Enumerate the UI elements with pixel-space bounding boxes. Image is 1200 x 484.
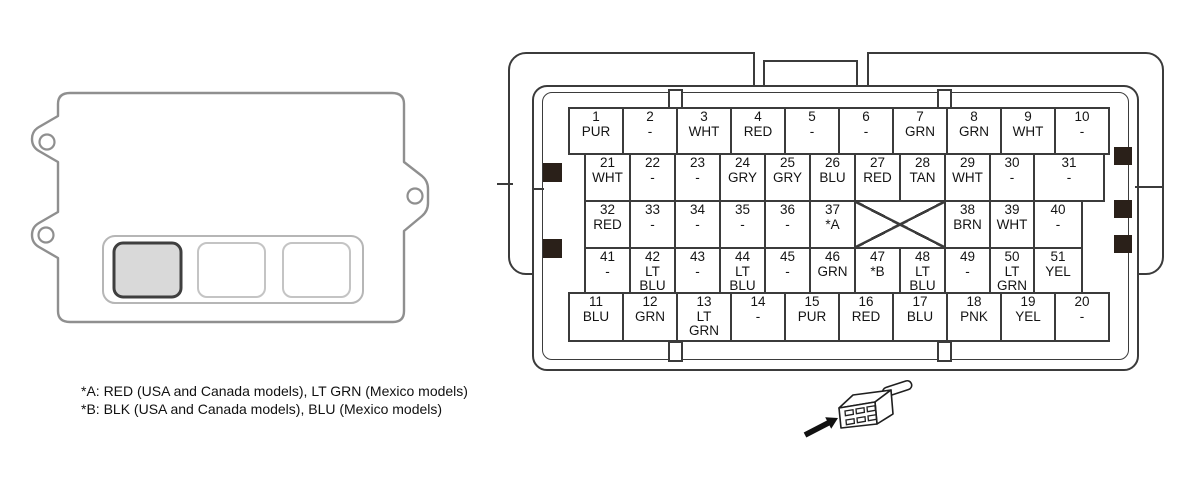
pin-cell-19: 19YEL — [1000, 292, 1056, 342]
pin-wire-color: WHT — [952, 171, 983, 186]
pin-number: 29 — [960, 156, 975, 171]
pin-wire-color: GRN — [959, 125, 989, 140]
pin-wire-color: PNK — [960, 310, 988, 325]
footnote-b: *B: BLK (USA and Canada models), BLU (Me… — [81, 401, 468, 419]
pin-number: 19 — [1020, 295, 1035, 310]
pin-cell-16: 16RED — [838, 292, 894, 342]
harness-connector-illustration — [793, 376, 928, 448]
pin-cell-49: 49- — [944, 247, 991, 294]
pin-wire-color: YEL — [1045, 265, 1071, 280]
pin-wire-color: WHT — [997, 218, 1028, 233]
footnote-a: *A: RED (USA and Canada models), LT GRN … — [81, 383, 468, 401]
pin-number: 14 — [750, 295, 765, 310]
pin-wire-color: *A — [825, 218, 839, 233]
pin-number: 49 — [960, 250, 975, 265]
pin-number: 15 — [804, 295, 819, 310]
pin-number: 39 — [1004, 203, 1019, 218]
pin-cell-31: 31- — [1033, 153, 1105, 202]
pin-cell-30: 30- — [989, 153, 1035, 202]
pin-cell-42: 42LT BLU — [629, 247, 676, 294]
pin-wire-color: WHT — [689, 125, 720, 140]
terminal-hole-icon — [846, 419, 854, 425]
terminal-hole-icon — [845, 410, 853, 416]
pin-number: 44 — [735, 250, 750, 265]
pin-wire-color: LT GRN — [689, 310, 719, 339]
pin-cell-36: 36- — [764, 200, 811, 249]
pin-cell-12: 12GRN — [622, 292, 678, 342]
pin-cell-8: 8GRN — [946, 107, 1002, 155]
pin-wire-color: - — [1080, 125, 1085, 140]
pin-cell-9: 9WHT — [1000, 107, 1056, 155]
pin-number: 8 — [970, 110, 978, 125]
pin-wire-color: - — [1080, 310, 1085, 325]
pin-wire-color: BRN — [953, 218, 982, 233]
pin-cell-17: 17BLU — [892, 292, 948, 342]
pin-wire-color: - — [650, 218, 655, 233]
pin-number: 4 — [754, 110, 762, 125]
pin-number: 45 — [780, 250, 795, 265]
pin-number: 1 — [592, 110, 600, 125]
pin-cell-27: 27RED — [854, 153, 901, 202]
pin-cell-7: 7GRN — [892, 107, 948, 155]
pin-cell-51: 51YEL — [1033, 247, 1083, 294]
pin-number: 12 — [642, 295, 657, 310]
pin-wire-color: - — [695, 171, 700, 186]
pin-wire-color: GRN — [635, 310, 665, 325]
keying-block-icon — [543, 163, 562, 182]
pin-cell-21: 21WHT — [584, 153, 631, 202]
pin-wire-color: - — [648, 125, 653, 140]
pin-cell-15: 15PUR — [784, 292, 840, 342]
pin-wire-color: *B — [870, 265, 884, 280]
pin-cell-34: 34- — [674, 200, 721, 249]
pin-wire-color: - — [1067, 171, 1072, 186]
pinout-diagram-page: 1PUR2-3WHT4RED5-6-7GRN8GRN9WHT10-21WHT22… — [0, 0, 1200, 484]
pin-cell-38: 38BRN — [944, 200, 991, 249]
pin-wire-color: BLU — [907, 310, 933, 325]
pin-cell-4: 4RED — [730, 107, 786, 155]
pin-wire-color: RED — [852, 310, 881, 325]
keying-block-icon — [1114, 200, 1132, 218]
pin-number: 31 — [1061, 156, 1076, 171]
pin-cell-2: 2- — [622, 107, 678, 155]
pin-wire-color: - — [1056, 218, 1061, 233]
pin-wire-color: BLU — [819, 171, 845, 186]
pin-wire-color: - — [695, 218, 700, 233]
pin-number: 21 — [600, 156, 615, 171]
pin-number: 27 — [870, 156, 885, 171]
terminal-hole-icon — [868, 415, 876, 421]
pin-cell-1: 1PUR — [568, 107, 624, 155]
pin-cell-46: 46GRN — [809, 247, 856, 294]
pin-wire-color: LT BLU — [639, 265, 665, 294]
pin-number: 23 — [690, 156, 705, 171]
pin-number: 34 — [690, 203, 705, 218]
pin-wire-color: - — [785, 218, 790, 233]
pin-number: 35 — [735, 203, 750, 218]
pin-wire-color: PUR — [798, 310, 827, 325]
pin-number: 43 — [690, 250, 705, 265]
pin-cell-50: 50LT GRN — [989, 247, 1035, 294]
footnotes: *A: RED (USA and Canada models), LT GRN … — [81, 383, 468, 418]
pin-number: 13 — [696, 295, 711, 310]
pointer-arrow-icon — [804, 417, 838, 437]
pin-cell-14: 14- — [730, 292, 786, 342]
pin-number: 18 — [966, 295, 981, 310]
pin-cell-33: 33- — [629, 200, 676, 249]
pin-wire-color: GRY — [728, 171, 757, 186]
pin-number: 40 — [1050, 203, 1065, 218]
pin-wire-color: YEL — [1015, 310, 1041, 325]
pin-cell-23: 23- — [674, 153, 721, 202]
pin-number: 32 — [600, 203, 615, 218]
terminal-hole-icon — [857, 417, 865, 423]
blocked-cell — [854, 200, 946, 249]
pin-cell-41: 41- — [584, 247, 631, 294]
pin-number: 36 — [780, 203, 795, 218]
pin-cell-29: 29WHT — [944, 153, 991, 202]
pin-wire-color: LT GRN — [997, 265, 1027, 294]
pin-wire-color: - — [810, 125, 815, 140]
pin-number: 10 — [1074, 110, 1089, 125]
pin-cell-45: 45- — [764, 247, 811, 294]
pin-wire-color: TAN — [910, 171, 936, 186]
pin-number: 37 — [825, 203, 840, 218]
pin-cell-13: 13LT GRN — [676, 292, 732, 342]
pin-cell-11: 11BLU — [568, 292, 624, 342]
pin-number: 20 — [1074, 295, 1089, 310]
pin-number: 48 — [915, 250, 930, 265]
pin-cell-39: 39WHT — [989, 200, 1035, 249]
pin-number: 33 — [645, 203, 660, 218]
pin-wire-color: BLU — [583, 310, 609, 325]
pin-cell-47: 47*B — [854, 247, 901, 294]
pin-wire-color: WHT — [1013, 125, 1044, 140]
pin-cell-18: 18PNK — [946, 292, 1002, 342]
pin-number: 7 — [916, 110, 924, 125]
pin-number: 11 — [589, 295, 603, 310]
pin-wire-color: LT BLU — [909, 265, 935, 294]
pin-number: 2 — [646, 110, 654, 125]
pin-wire-color: GRY — [773, 171, 802, 186]
pin-cell-35: 35- — [719, 200, 766, 249]
pin-number: 47 — [870, 250, 885, 265]
pin-cell-44: 44LT BLU — [719, 247, 766, 294]
pin-cell-25: 25GRY — [764, 153, 811, 202]
pin-number: 38 — [960, 203, 975, 218]
pin-wire-color: - — [864, 125, 869, 140]
pin-wire-color: LT BLU — [729, 265, 755, 294]
pin-cell-6: 6- — [838, 107, 894, 155]
pin-cell-10: 10- — [1054, 107, 1110, 155]
pin-number: 22 — [645, 156, 660, 171]
pin-wire-color: - — [695, 265, 700, 280]
terminal-hole-icon — [856, 408, 864, 414]
pin-cell-28: 28TAN — [899, 153, 946, 202]
pin-number: 25 — [780, 156, 795, 171]
pin-wire-color: - — [650, 171, 655, 186]
pin-number: 5 — [808, 110, 816, 125]
pin-wire-color: RED — [593, 218, 622, 233]
pin-number: 41 — [600, 250, 615, 265]
pin-wire-color: - — [785, 265, 790, 280]
pin-cell-48: 48LT BLU — [899, 247, 946, 294]
pin-wire-color: - — [756, 310, 761, 325]
pin-wire-color: - — [1010, 171, 1015, 186]
keying-block-icon — [1114, 147, 1132, 165]
pin-cell-24: 24GRY — [719, 153, 766, 202]
pin-wire-color: - — [740, 218, 745, 233]
pin-number: 6 — [862, 110, 870, 125]
terminal-hole-icon — [867, 406, 875, 412]
pin-number: 26 — [825, 156, 840, 171]
pin-cell-22: 22- — [629, 153, 676, 202]
pin-number: 50 — [1004, 250, 1019, 265]
pin-cell-43: 43- — [674, 247, 721, 294]
keying-block-icon — [543, 239, 562, 258]
pin-wire-color: - — [965, 265, 970, 280]
pin-wire-color: PUR — [582, 125, 611, 140]
pin-cell-40: 40- — [1033, 200, 1083, 249]
pin-wire-color: RED — [863, 171, 892, 186]
pin-number: 28 — [915, 156, 930, 171]
pin-cell-37: 37*A — [809, 200, 856, 249]
pin-cell-3: 3WHT — [676, 107, 732, 155]
pin-cell-26: 26BLU — [809, 153, 856, 202]
pin-number: 9 — [1024, 110, 1032, 125]
pin-wire-color: GRN — [818, 265, 848, 280]
pin-number: 3 — [700, 110, 708, 125]
pin-number: 17 — [912, 295, 927, 310]
pin-wire-color: RED — [744, 125, 773, 140]
pin-number: 51 — [1050, 250, 1065, 265]
pin-number: 30 — [1004, 156, 1019, 171]
keying-block-icon — [1114, 235, 1132, 253]
pin-wire-color: GRN — [905, 125, 935, 140]
pin-cell-5: 5- — [784, 107, 840, 155]
pin-number: 42 — [645, 250, 660, 265]
pin-wire-color: - — [605, 265, 610, 280]
pin-number: 46 — [825, 250, 840, 265]
pin-cell-20: 20- — [1054, 292, 1110, 342]
pin-number: 16 — [858, 295, 873, 310]
pin-cell-32: 32RED — [584, 200, 631, 249]
pin-number: 24 — [735, 156, 750, 171]
pin-wire-color: WHT — [592, 171, 623, 186]
